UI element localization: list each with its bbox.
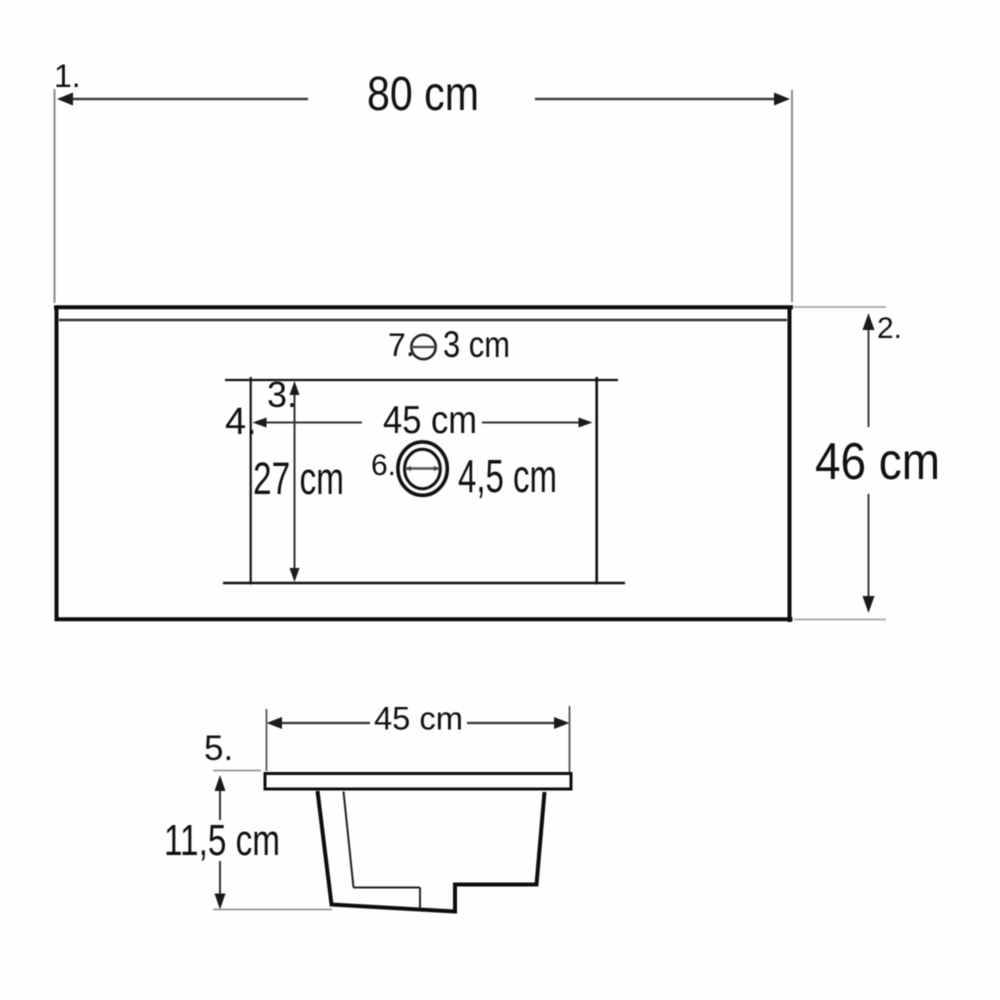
svg-text:45 cm: 45 cm	[383, 399, 477, 442]
svg-text:45 cm: 45 cm	[374, 701, 463, 737]
svg-text:4,5 cm: 4,5 cm	[458, 450, 557, 502]
svg-text:1.: 1.	[54, 58, 81, 94]
svg-text:5.: 5.	[204, 729, 233, 768]
svg-text:3 cm: 3 cm	[443, 324, 510, 365]
svg-text:80 cm: 80 cm	[367, 68, 479, 121]
svg-text:27 cm: 27 cm	[253, 453, 344, 504]
svg-text:4.: 4.	[225, 401, 257, 443]
svg-text:11,5 cm: 11,5 cm	[164, 816, 280, 865]
svg-text:2.: 2.	[877, 312, 902, 345]
svg-text:6.: 6.	[371, 449, 396, 482]
svg-text:46 cm: 46 cm	[815, 433, 940, 491]
